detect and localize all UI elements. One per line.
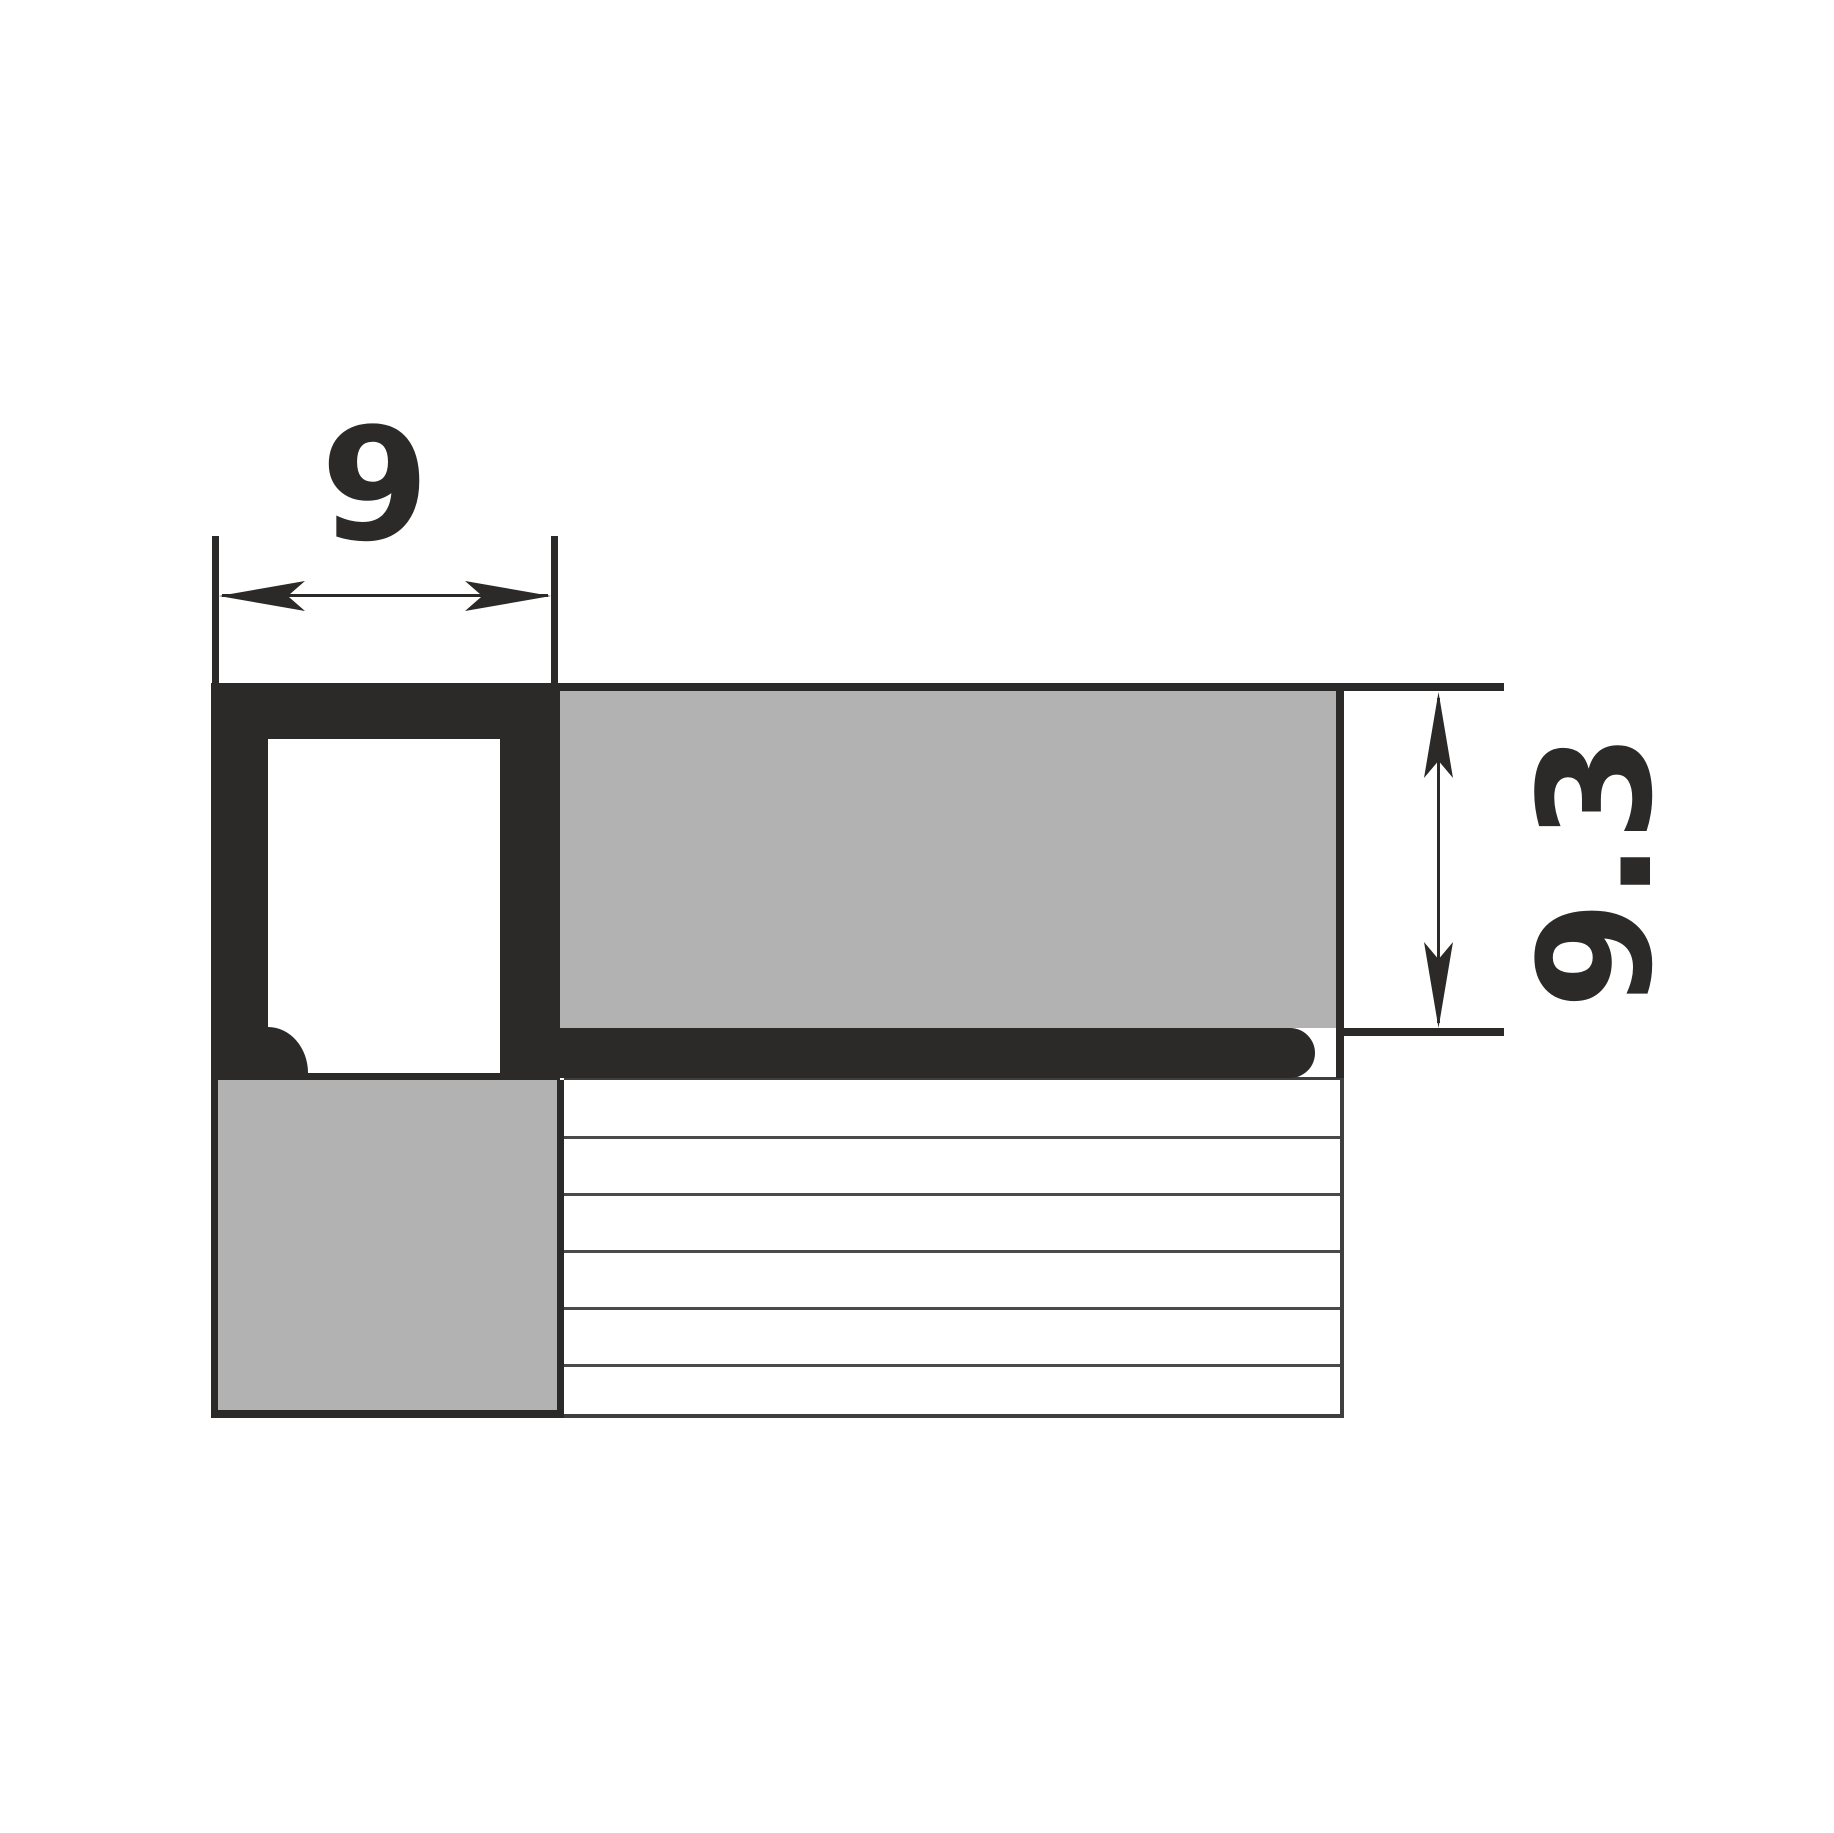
cavity-corner-fillet [268, 1027, 308, 1073]
extension-line-right [551, 536, 558, 683]
substrate-line [564, 1250, 1340, 1253]
profile-cross-section [211, 683, 560, 1080]
profile-base-flange [540, 1028, 1315, 1078]
tile-top [558, 691, 1336, 1028]
tile-side [211, 1080, 564, 1418]
profile-cavity [268, 739, 500, 1073]
extension-line-bottom [1336, 1028, 1504, 1036]
substrate-line [564, 1307, 1340, 1310]
tile-top-right-edge [1336, 691, 1344, 1078]
substrate-ruled-box [564, 1077, 1344, 1418]
tile-side-face [218, 1080, 557, 1410]
extension-line-left [212, 536, 219, 683]
substrate-line [564, 1136, 1340, 1139]
diagram-canvas: 9 9.3 [0, 0, 1834, 1833]
width-dimension-label: 9 [275, 405, 475, 565]
extension-line-top [556, 683, 1504, 691]
substrate-line [564, 1193, 1340, 1196]
height-dimension-label: 9.3 [1516, 711, 1676, 1031]
substrate-line [564, 1364, 1340, 1367]
